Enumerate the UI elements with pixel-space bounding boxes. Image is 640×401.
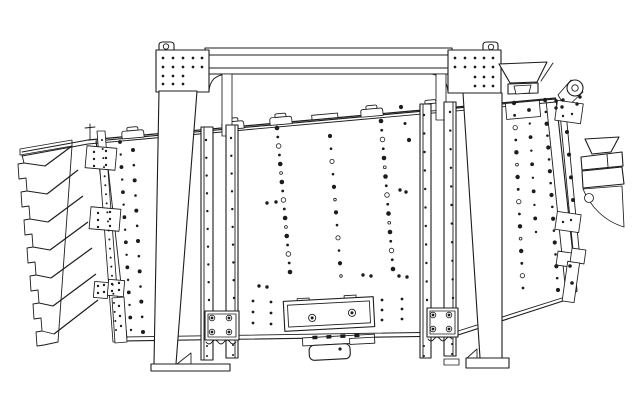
rivet <box>205 174 207 176</box>
rivet <box>136 225 139 228</box>
rivet <box>520 262 523 265</box>
rivet <box>207 245 209 247</box>
rivet <box>578 95 581 98</box>
rivet <box>388 221 391 224</box>
hanger-plate-top <box>85 146 117 171</box>
rivet <box>330 159 334 163</box>
foot-gusset-left <box>177 353 191 364</box>
rivet <box>182 66 185 69</box>
spout-tread <box>24 163 45 166</box>
rivet <box>139 285 142 288</box>
rivet <box>474 85 477 88</box>
rivet <box>206 210 208 212</box>
rivet <box>551 206 554 209</box>
rivet <box>207 281 209 283</box>
rivet <box>97 285 99 287</box>
rivet <box>382 147 385 150</box>
rivet <box>207 263 209 265</box>
rivet <box>464 66 467 69</box>
rivet <box>109 218 111 220</box>
rivet <box>407 138 411 142</box>
chute-box-lower <box>582 167 624 188</box>
rivet <box>379 119 384 124</box>
rivet <box>93 151 95 153</box>
rivet <box>231 208 233 210</box>
rivet <box>162 66 165 69</box>
rivet <box>451 222 453 224</box>
rivet <box>232 261 234 263</box>
spout-edge-line <box>48 196 83 222</box>
rivet <box>426 299 428 301</box>
rivet <box>104 175 106 177</box>
rivet <box>401 318 404 321</box>
rivet <box>118 282 120 284</box>
rivet <box>546 134 549 137</box>
gusset-plate <box>583 186 624 227</box>
rivet <box>449 111 451 113</box>
rivet <box>131 148 135 152</box>
channel-base-pad <box>444 359 459 365</box>
rivet <box>201 57 204 60</box>
end-plate-top <box>555 100 584 123</box>
cap-plate-left-body <box>156 50 209 92</box>
rivet <box>336 224 339 227</box>
rivet <box>424 188 426 190</box>
rivet <box>514 150 518 154</box>
rivet <box>283 208 286 211</box>
rivet <box>515 175 519 179</box>
rivet <box>405 275 408 278</box>
hopper-funnel <box>499 62 547 83</box>
rivet <box>201 66 204 69</box>
rivet <box>423 114 425 116</box>
rivet <box>252 300 255 303</box>
rivet <box>208 299 210 301</box>
rivet <box>105 150 107 152</box>
rivet <box>527 108 531 112</box>
rivet <box>522 287 525 290</box>
rivet <box>121 190 125 194</box>
rivet <box>330 147 333 150</box>
rivet <box>449 148 451 150</box>
rivet <box>513 125 517 129</box>
rivet <box>286 244 289 247</box>
lifting-eye-tab-right <box>483 42 498 50</box>
rivet <box>391 258 394 261</box>
rivet <box>278 162 283 167</box>
rivet <box>278 154 281 157</box>
rivet <box>562 115 564 117</box>
rivet <box>483 85 486 88</box>
rivet <box>401 298 404 301</box>
rivet <box>124 229 126 231</box>
rivet <box>114 320 116 322</box>
rivet <box>232 344 234 346</box>
rivet <box>340 275 343 278</box>
rivet <box>575 102 578 105</box>
rivet <box>336 236 340 240</box>
rivet <box>130 329 132 331</box>
rivet <box>182 75 185 78</box>
rivet <box>125 254 127 256</box>
rivet <box>545 111 548 114</box>
stack-step-edge <box>18 155 44 346</box>
rivet <box>454 66 457 69</box>
rivet <box>231 190 233 192</box>
rivet <box>125 265 129 269</box>
spout-edge-line <box>47 170 78 194</box>
rivet <box>492 85 495 88</box>
rivet <box>124 240 128 244</box>
rivet <box>545 122 549 126</box>
panel-door <box>287 301 370 327</box>
rivet <box>334 210 338 214</box>
rivet <box>556 288 560 292</box>
rivet <box>103 291 105 293</box>
end-plate-mid <box>555 211 581 232</box>
rivet <box>383 174 388 179</box>
rivet <box>232 354 234 356</box>
rivet <box>334 198 337 201</box>
rivet <box>182 57 185 60</box>
rivet <box>280 180 285 185</box>
rivet <box>569 175 573 179</box>
rivet <box>519 237 522 240</box>
drive-side-bracket <box>350 337 375 344</box>
rivet <box>109 248 111 250</box>
rail-end-bracket2 <box>85 127 95 128</box>
rivet <box>172 66 175 69</box>
rivet <box>127 291 131 295</box>
rivet <box>284 234 289 239</box>
rivet <box>206 355 208 357</box>
rivet <box>118 140 122 144</box>
rivet <box>567 153 571 157</box>
rivet <box>108 239 110 241</box>
rivet <box>519 249 523 253</box>
rivet <box>265 285 268 288</box>
inlet-hopper <box>499 62 547 119</box>
rivet <box>382 156 387 161</box>
rivet <box>205 139 207 141</box>
support-frame-beam <box>205 48 452 92</box>
rivet <box>111 275 113 277</box>
rivet <box>513 114 516 117</box>
foot-left <box>151 364 230 371</box>
rivet <box>450 185 452 187</box>
rivet <box>122 203 124 205</box>
rivet <box>381 319 384 322</box>
rivet <box>399 105 403 109</box>
rivet <box>380 129 383 132</box>
rivet <box>518 213 521 216</box>
rivet <box>206 228 208 230</box>
rivet <box>383 166 386 169</box>
rivet <box>464 57 467 60</box>
rivet <box>432 328 435 331</box>
rivet <box>270 312 273 315</box>
rivet <box>103 284 105 286</box>
rivet <box>529 135 533 139</box>
lifting-eye-end <box>567 80 583 96</box>
rivet <box>492 76 495 79</box>
rivet <box>474 57 477 60</box>
rivet <box>162 75 165 78</box>
rivet <box>115 329 117 331</box>
rivet <box>274 200 277 203</box>
rivet <box>270 323 273 326</box>
rivet <box>281 190 284 193</box>
rivet <box>228 331 231 334</box>
rivet <box>112 293 114 295</box>
rivet <box>123 215 127 219</box>
rivet <box>134 194 137 197</box>
rivet <box>451 353 453 355</box>
rivet <box>133 178 137 182</box>
rivet <box>474 66 477 69</box>
spout-tread <box>30 219 48 222</box>
rivet <box>162 83 165 86</box>
rivet <box>492 57 495 60</box>
rivet <box>93 158 95 160</box>
chute-funnel <box>585 137 619 154</box>
rivet <box>549 182 552 185</box>
rivet <box>361 273 364 276</box>
rivet <box>452 297 454 299</box>
rivet <box>570 281 574 285</box>
rivet <box>338 261 342 265</box>
rivet <box>517 199 521 203</box>
rivet <box>276 144 281 149</box>
rivet <box>520 273 524 277</box>
rivet <box>548 169 552 173</box>
rivet <box>128 316 132 320</box>
rivet <box>111 290 113 292</box>
rivet <box>553 229 556 232</box>
rivet <box>570 219 572 221</box>
rivet <box>108 229 110 231</box>
rivet <box>107 220 109 222</box>
rivet <box>518 224 522 228</box>
hopper-collar-tab <box>514 85 531 94</box>
rivet <box>554 264 558 268</box>
rivet <box>172 57 175 60</box>
rivet <box>192 57 195 60</box>
rivet <box>571 198 575 202</box>
rivet <box>211 317 214 320</box>
rivet <box>206 192 208 194</box>
rivet <box>265 201 268 204</box>
rivet <box>230 155 232 157</box>
rivet <box>533 217 537 221</box>
rivet <box>423 132 425 134</box>
rivet <box>103 166 105 168</box>
rivet <box>425 243 427 245</box>
spout-edge-line <box>53 274 96 306</box>
rivet <box>288 270 293 275</box>
spout-tread <box>39 303 53 306</box>
rivet <box>397 274 400 277</box>
rivet <box>133 164 136 167</box>
rivet <box>450 204 452 206</box>
rivet <box>120 165 124 169</box>
rivet <box>206 345 208 347</box>
rivet <box>425 225 427 227</box>
rivet <box>233 297 235 299</box>
drive-clip <box>354 333 359 337</box>
hopper-base-plate <box>505 101 540 120</box>
rivet <box>285 226 288 229</box>
drive-clip <box>326 335 331 339</box>
hanger-plate-small <box>93 281 108 298</box>
rivet <box>554 99 557 102</box>
rivet <box>136 239 140 243</box>
rivet <box>388 230 393 235</box>
rivet <box>426 280 428 282</box>
rivet <box>386 211 391 216</box>
rivet <box>97 292 99 294</box>
rivet <box>532 189 536 193</box>
rivet <box>562 221 564 223</box>
gusset-hole <box>585 194 594 203</box>
rivet <box>109 225 111 227</box>
rivet <box>423 355 425 357</box>
rivet <box>232 243 234 245</box>
rivet <box>423 345 425 347</box>
rivet <box>118 289 120 291</box>
drive-clip <box>340 334 345 338</box>
rivet <box>113 302 115 304</box>
rivet <box>424 206 426 208</box>
rivet <box>404 190 407 193</box>
rivet <box>551 217 555 221</box>
rivet <box>101 139 103 141</box>
rivet <box>423 151 425 153</box>
rivet <box>230 137 232 139</box>
rivet <box>270 301 273 304</box>
rivet <box>401 308 404 311</box>
rivet <box>162 57 165 60</box>
spout-tread <box>33 247 50 250</box>
rivet <box>332 173 335 176</box>
spout-edge-line <box>50 222 88 250</box>
rivet <box>141 330 145 334</box>
hanger-plate-mid <box>89 207 121 232</box>
rivet <box>561 98 564 101</box>
rivet <box>182 83 185 86</box>
rivet <box>474 76 477 79</box>
discharge-stack-left <box>18 140 98 346</box>
rivet <box>546 145 550 149</box>
rivet <box>105 157 107 159</box>
rivet <box>448 314 451 317</box>
hanger-plate-small <box>107 279 124 296</box>
rivet <box>450 167 452 169</box>
rivet <box>338 249 341 252</box>
rivet <box>134 209 138 213</box>
drive-unit <box>302 333 375 361</box>
rivet <box>120 153 122 155</box>
rivet <box>391 267 396 272</box>
rivet <box>483 57 486 60</box>
rivet <box>404 122 407 125</box>
spout-tread <box>42 331 54 334</box>
rivet <box>127 279 129 281</box>
rivet <box>93 165 95 167</box>
rivet <box>432 314 435 317</box>
rivet <box>230 172 232 174</box>
rivet <box>138 255 141 258</box>
rivet <box>556 277 559 280</box>
rivet <box>102 157 104 159</box>
rivet <box>565 130 569 134</box>
rivet <box>398 188 401 191</box>
rivet <box>530 162 534 166</box>
rivet <box>451 343 453 345</box>
rivet <box>119 315 121 317</box>
rivet <box>483 66 486 69</box>
rivet <box>454 57 457 60</box>
rivet <box>257 284 260 287</box>
rivet <box>192 66 195 69</box>
rivet <box>549 193 553 197</box>
rivet <box>128 304 130 306</box>
rivet <box>104 184 106 186</box>
rivet <box>275 126 280 131</box>
rivet <box>425 262 427 264</box>
rivet <box>548 158 551 161</box>
rivet <box>530 149 532 151</box>
rivet <box>232 279 234 281</box>
rivet <box>97 226 99 228</box>
rivet <box>106 202 108 204</box>
rivet <box>328 134 332 138</box>
foot-right <box>466 358 509 368</box>
rivet <box>385 184 388 187</box>
rivet <box>288 262 291 265</box>
rivet <box>252 322 255 325</box>
rivet <box>483 76 486 79</box>
rivet <box>109 211 111 213</box>
machine-drawing <box>0 0 640 401</box>
rivet <box>138 269 142 273</box>
rivet <box>120 325 122 327</box>
rivet <box>381 299 384 302</box>
drive-motor-housing <box>309 343 351 360</box>
rivet <box>118 305 120 307</box>
rivet <box>97 212 99 214</box>
rivet <box>141 316 144 319</box>
rivet <box>139 300 143 304</box>
rivet <box>385 193 390 198</box>
rivet <box>172 75 175 78</box>
rivet <box>114 311 116 313</box>
rivet <box>535 231 537 233</box>
rivet <box>553 240 557 244</box>
rivet <box>172 83 175 86</box>
rivet <box>205 157 207 159</box>
clamp-tab <box>121 126 144 139</box>
rivet <box>571 113 573 115</box>
rivet <box>516 163 519 166</box>
drive-clip <box>312 336 317 340</box>
end-plate-small <box>570 248 586 264</box>
rivet <box>554 253 557 256</box>
rivet <box>276 136 279 139</box>
rivet <box>517 188 520 191</box>
rivet <box>389 248 394 253</box>
rivet <box>369 274 372 277</box>
